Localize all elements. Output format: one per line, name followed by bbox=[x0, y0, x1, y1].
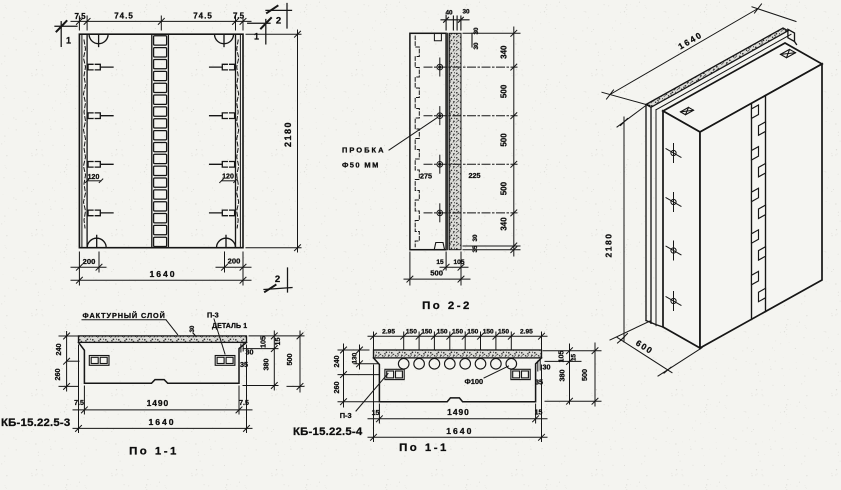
svg-text:2180: 2180 bbox=[283, 121, 293, 147]
svg-text:275: 275 bbox=[420, 171, 432, 180]
svg-text:200: 200 bbox=[83, 257, 96, 266]
svg-text:200: 200 bbox=[228, 257, 241, 266]
svg-text:240: 240 bbox=[332, 356, 341, 368]
svg-text:260: 260 bbox=[332, 382, 341, 394]
svg-text:1490: 1490 bbox=[447, 407, 470, 417]
svg-text:Ф100: Ф100 bbox=[465, 377, 484, 386]
svg-text:1640: 1640 bbox=[149, 269, 176, 279]
svg-text:1490: 1490 bbox=[147, 398, 170, 408]
svg-text:По 2-2: По 2-2 bbox=[422, 300, 472, 312]
svg-text:105: 105 bbox=[557, 351, 566, 363]
svg-text:2: 2 bbox=[275, 274, 280, 285]
svg-text:30: 30 bbox=[472, 234, 479, 241]
svg-text:П-3: П-3 bbox=[207, 310, 219, 319]
svg-text:130: 130 bbox=[352, 352, 359, 363]
svg-text:15: 15 bbox=[535, 410, 543, 417]
svg-text:7.5: 7.5 bbox=[74, 12, 86, 21]
svg-text:15: 15 bbox=[372, 410, 380, 417]
svg-text:380: 380 bbox=[558, 370, 567, 382]
svg-text:225: 225 bbox=[469, 171, 481, 180]
svg-text:15: 15 bbox=[436, 259, 444, 266]
svg-text:340: 340 bbox=[500, 45, 509, 59]
svg-text:По 1-1: По 1-1 bbox=[129, 445, 179, 457]
svg-text:120: 120 bbox=[88, 174, 100, 181]
svg-text:КБ-15.22.5-3: КБ-15.22.5-3 bbox=[1, 417, 70, 429]
svg-text:7.5: 7.5 bbox=[239, 400, 249, 407]
svg-text:Ф50 ММ: Ф50 ММ bbox=[342, 161, 380, 170]
svg-text:150: 150 bbox=[452, 329, 463, 336]
svg-text:30: 30 bbox=[473, 42, 480, 50]
svg-text:120: 120 bbox=[222, 174, 234, 181]
svg-text:П-3: П-3 bbox=[340, 411, 352, 420]
svg-text:1640: 1640 bbox=[446, 426, 473, 436]
svg-text:150: 150 bbox=[421, 329, 432, 336]
svg-text:2180: 2180 bbox=[604, 233, 614, 258]
svg-text:74.5: 74.5 bbox=[114, 12, 134, 21]
svg-text:2: 2 bbox=[276, 16, 281, 27]
svg-text:1: 1 bbox=[254, 32, 259, 42]
svg-text:7.5: 7.5 bbox=[74, 400, 84, 407]
svg-text:500: 500 bbox=[500, 181, 509, 195]
svg-text:500: 500 bbox=[285, 354, 294, 366]
svg-text:7.5: 7.5 bbox=[233, 12, 245, 21]
svg-text:150: 150 bbox=[437, 329, 448, 336]
svg-text:500: 500 bbox=[500, 84, 509, 98]
svg-text:30: 30 bbox=[543, 363, 551, 372]
svg-text:15: 15 bbox=[571, 354, 578, 362]
svg-text:40: 40 bbox=[445, 10, 453, 17]
svg-text:260: 260 bbox=[53, 369, 62, 381]
svg-text:30: 30 bbox=[462, 9, 470, 16]
svg-text:ФАКТУРНЫЙ СЛОЙ: ФАКТУРНЫЙ СЛОЙ bbox=[83, 311, 166, 320]
svg-text:2.95: 2.95 bbox=[382, 329, 395, 336]
svg-text:ПРОБКА: ПРОБКА bbox=[342, 146, 386, 155]
svg-text:340: 340 bbox=[500, 217, 509, 231]
svg-text:1: 1 bbox=[66, 36, 71, 46]
svg-text:1640: 1640 bbox=[148, 417, 175, 427]
svg-text:105: 105 bbox=[453, 259, 464, 266]
svg-text:30: 30 bbox=[190, 325, 196, 332]
svg-text:500: 500 bbox=[580, 369, 589, 381]
svg-text:105: 105 bbox=[259, 336, 268, 348]
svg-text:15: 15 bbox=[273, 338, 282, 346]
svg-text:По 1-1: По 1-1 bbox=[399, 442, 449, 454]
svg-text:240: 240 bbox=[54, 344, 63, 356]
svg-text:150: 150 bbox=[483, 329, 494, 336]
svg-text:150: 150 bbox=[467, 329, 478, 336]
svg-text:КБ-15.22.5-4: КБ-15.22.5-4 bbox=[293, 426, 363, 438]
svg-text:35: 35 bbox=[472, 245, 479, 252]
svg-text:500: 500 bbox=[500, 133, 509, 147]
svg-text:2.95: 2.95 bbox=[520, 329, 533, 336]
svg-text:500: 500 bbox=[430, 269, 443, 278]
svg-text:150: 150 bbox=[406, 329, 417, 336]
svg-text:380: 380 bbox=[262, 359, 271, 371]
svg-text:74.5: 74.5 bbox=[193, 12, 213, 21]
svg-text:150: 150 bbox=[498, 329, 509, 336]
